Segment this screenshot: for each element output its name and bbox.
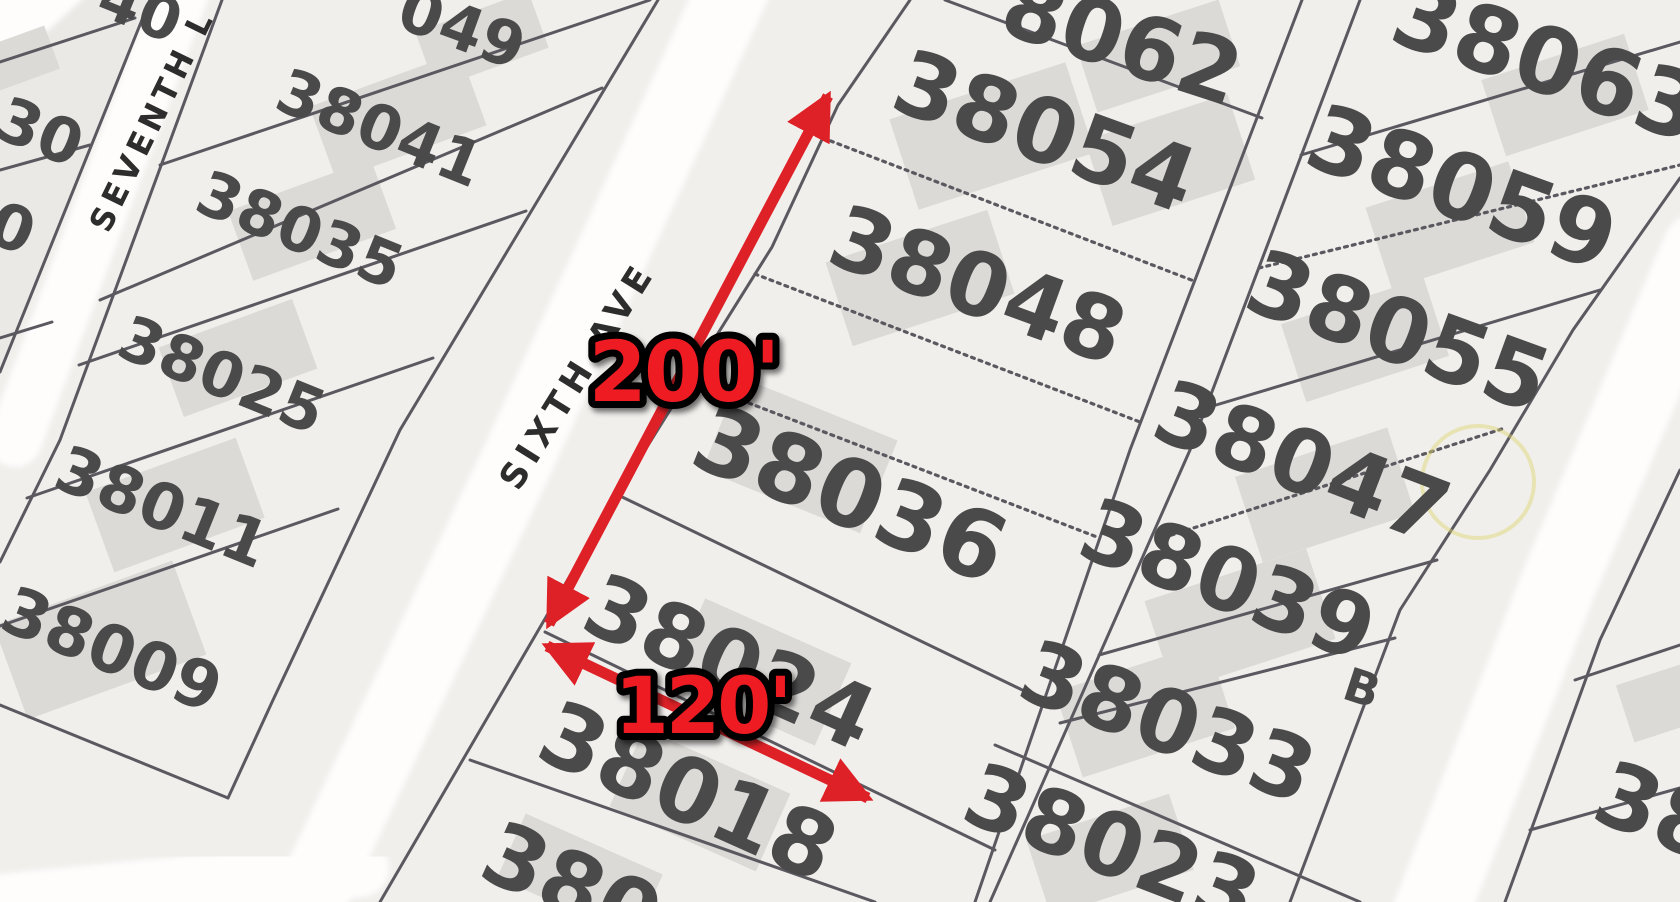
parcel-label[interactable]: 38035 <box>186 156 413 304</box>
parcel-label[interactable]: 38 <box>1581 741 1680 884</box>
building-footprint <box>1616 658 1680 743</box>
bottom-left-band <box>0 868 360 902</box>
parcel-map[interactable]: SEVENTH LSIXTH AVE 403000493804138035380… <box>0 0 1680 902</box>
measurement-label: 120' <box>615 662 790 752</box>
parcel-map-canvas: SEVENTH LSIXTH AVE 403000493804138035380… <box>0 0 1680 902</box>
parcel-label[interactable]: 38025 <box>108 301 335 449</box>
parcel-label[interactable]: 38011 <box>45 432 279 584</box>
measurement-label: 200' <box>588 323 777 421</box>
